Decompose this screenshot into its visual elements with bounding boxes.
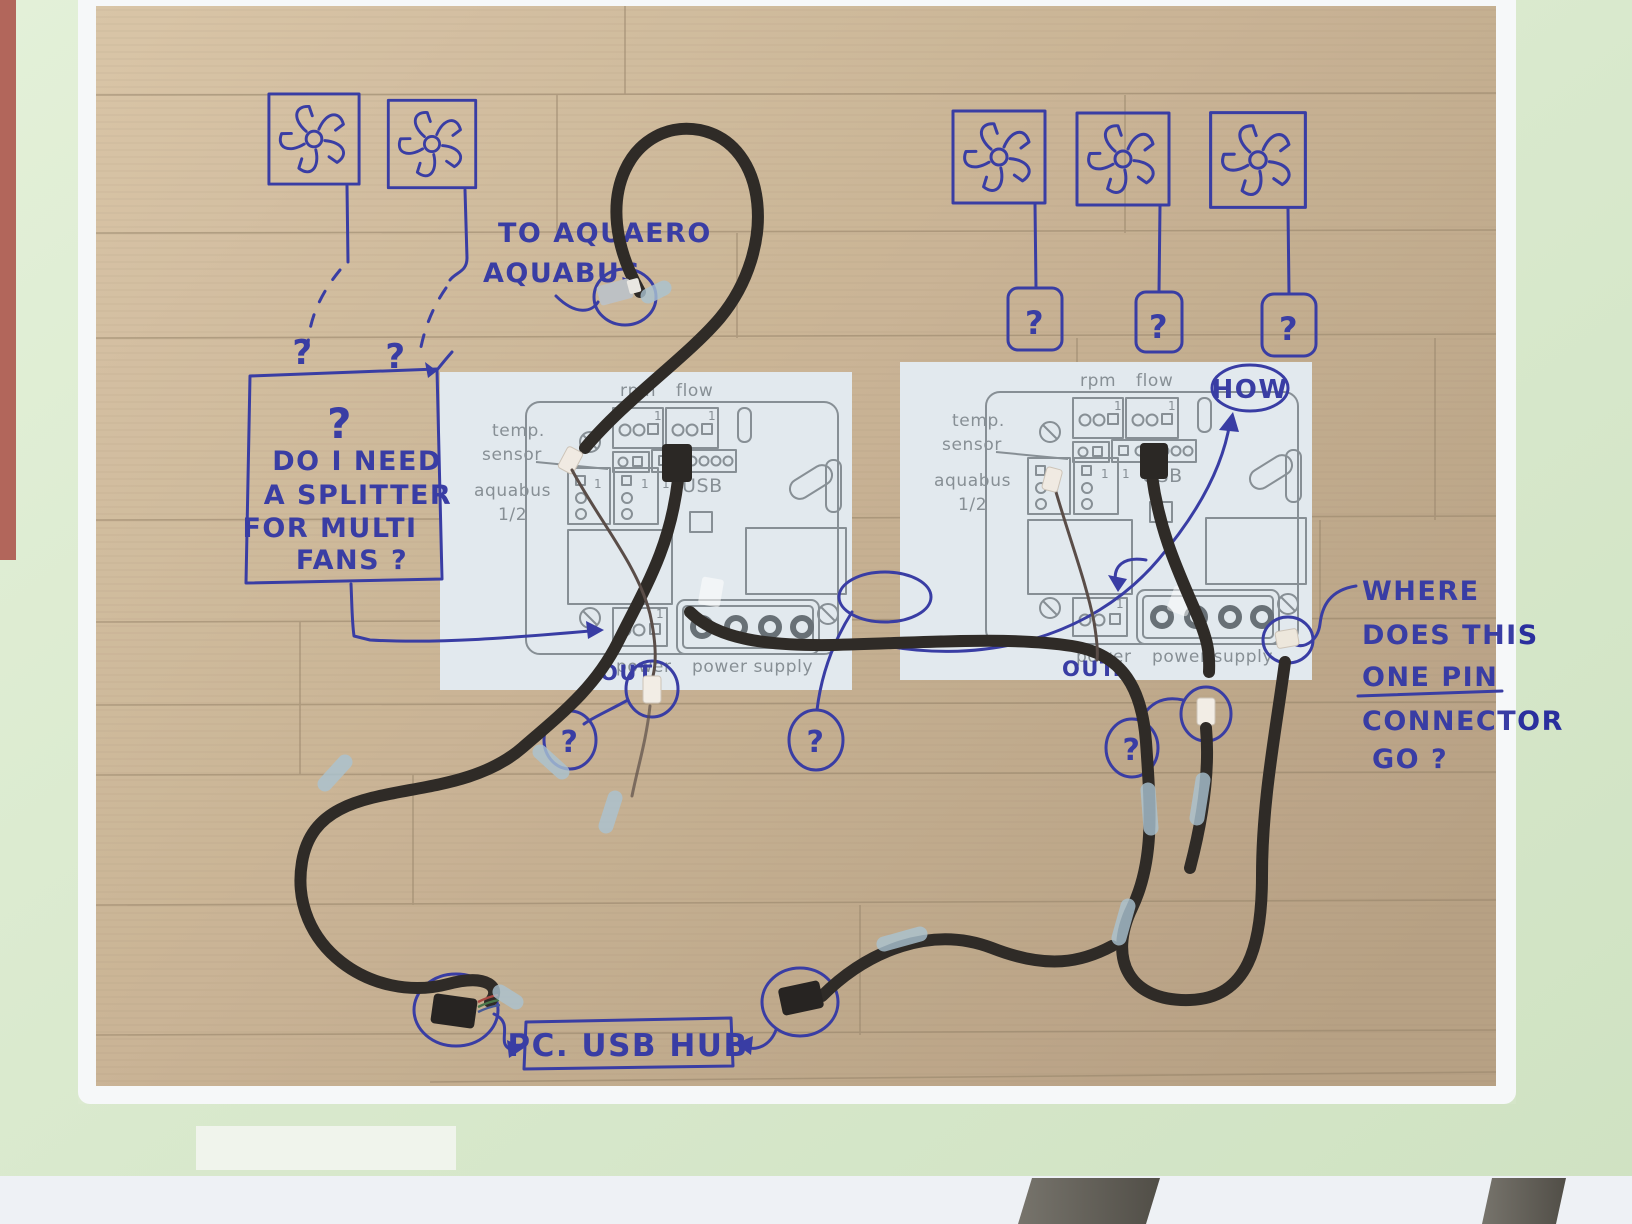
floor-below-table <box>0 1176 1632 1224</box>
photo-of-wiring-diagram: 1 1 1 1 1 <box>0 0 1632 1224</box>
red-object-edge <box>0 0 16 560</box>
tape-on-table <box>196 1126 456 1170</box>
photo-paper: ? ? ? DO I NEED A SPLITTER FOR MULTI FAN… <box>78 0 1564 1104</box>
lighting-overlay <box>78 0 1516 1104</box>
diagram-photo: 1 1 1 1 1 <box>0 0 1632 1224</box>
table-leg <box>1018 1178 1160 1224</box>
table-leg <box>1482 1178 1566 1224</box>
